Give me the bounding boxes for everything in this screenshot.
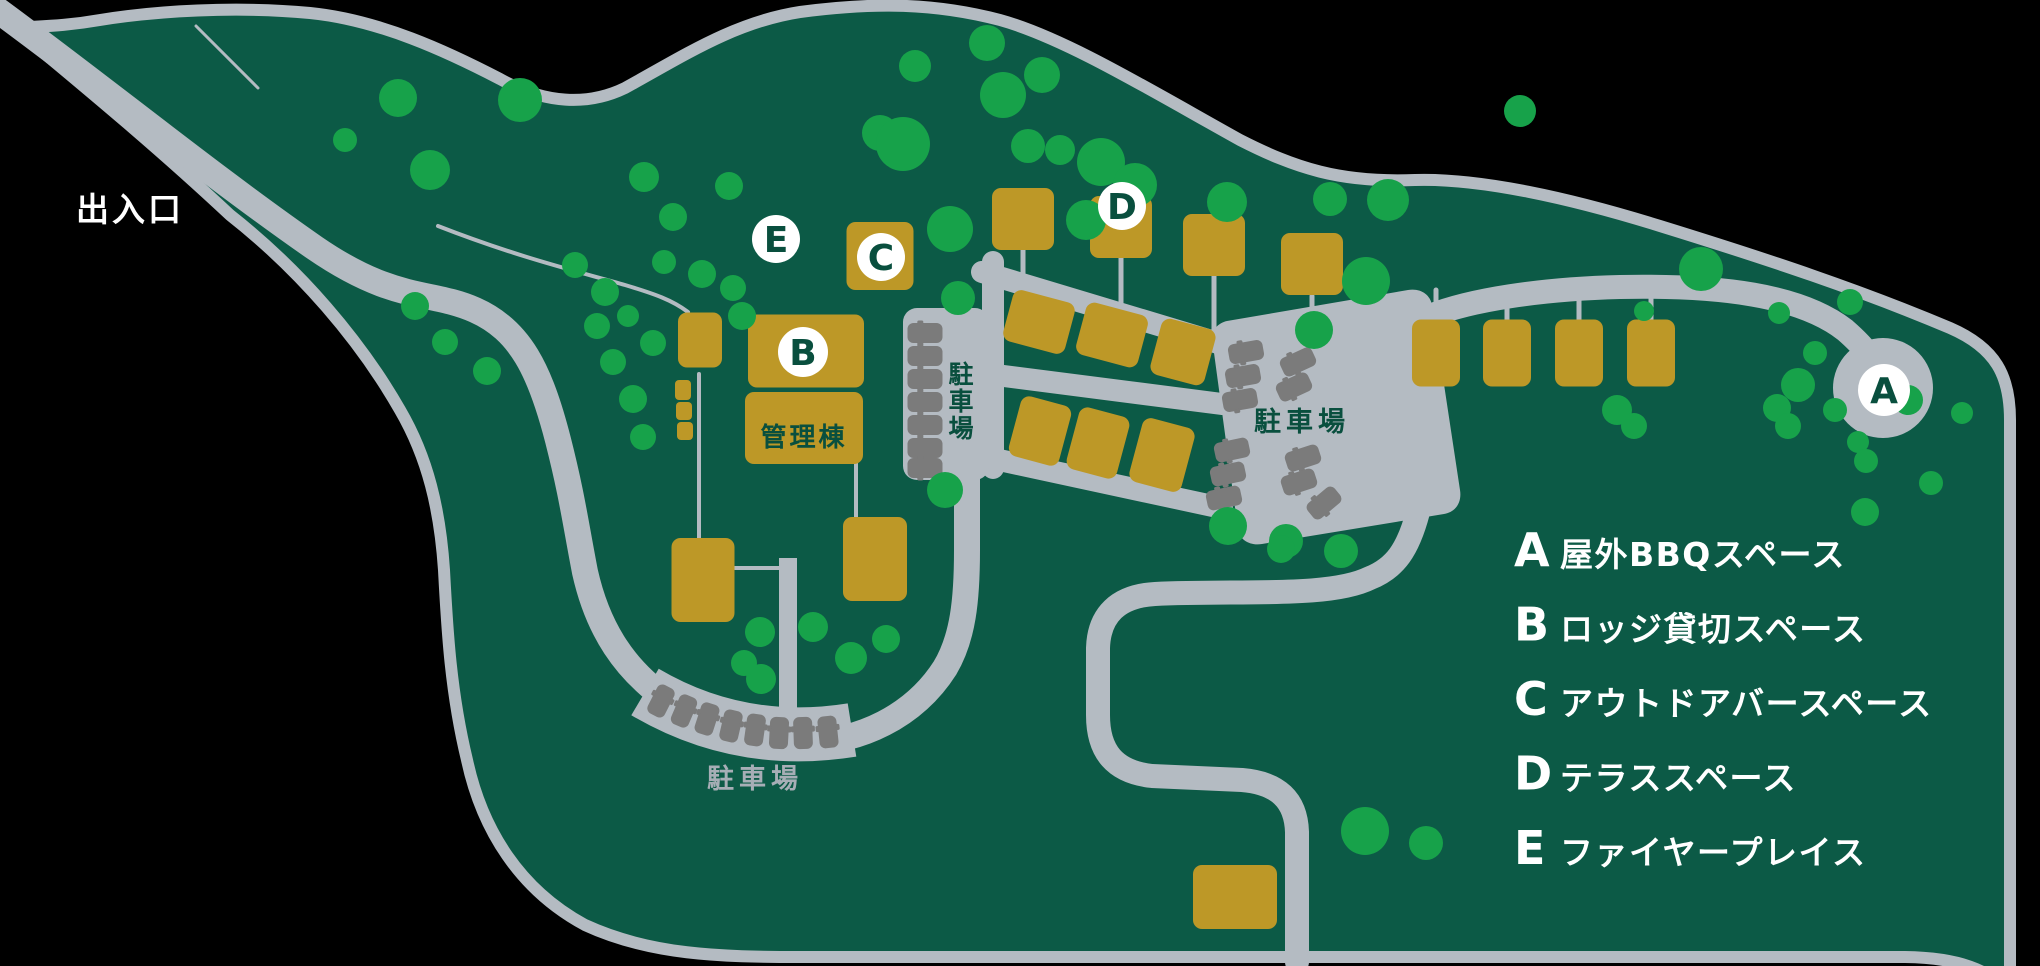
building (678, 313, 722, 368)
marker-c: C (857, 233, 905, 281)
legend-text: ファイヤープレイス (1560, 833, 1867, 872)
marker-e: E (752, 215, 800, 263)
marker-b: B (778, 327, 828, 377)
tree-icon (1367, 179, 1409, 221)
legend-letter: E (1514, 821, 1545, 875)
tree-icon (432, 329, 458, 355)
tree-icon (1919, 471, 1943, 495)
marker-letter: B (789, 333, 816, 374)
building (1412, 320, 1460, 387)
tree-icon (941, 281, 975, 315)
tree-icon (629, 162, 659, 192)
tree-icon (1207, 182, 1247, 222)
marker-d: D (1098, 182, 1146, 230)
tree-icon (688, 260, 716, 288)
tree-icon (600, 349, 626, 375)
entrance-label: 出入口 (76, 190, 184, 229)
tree-icon (1768, 302, 1790, 324)
tree-icon (562, 252, 588, 278)
legend-text: テラススペース (1560, 759, 1797, 798)
legend-letter: C (1514, 672, 1548, 726)
tree-icon (1295, 311, 1333, 349)
tree-icon (1837, 289, 1863, 315)
legend-text: アウトドアバースペース (1560, 684, 1933, 723)
building (1281, 233, 1343, 295)
tree-icon (1823, 398, 1847, 422)
tree-icon (1324, 534, 1358, 568)
legend-letter: B (1514, 598, 1549, 652)
tree-icon (1775, 413, 1801, 439)
legend-letter: D (1514, 747, 1552, 801)
tree-icon (835, 642, 867, 674)
parking-label-right: 駐車場 (1254, 407, 1350, 438)
building (677, 422, 693, 440)
car-icon (908, 413, 943, 438)
tree-icon (969, 25, 1005, 61)
parking-label-bottom: 駐車場 (707, 764, 803, 795)
tree-icon (333, 128, 357, 152)
tree-icon (1342, 257, 1390, 305)
tree-icon (1504, 95, 1536, 127)
building (843, 517, 907, 601)
tree-icon (728, 302, 756, 330)
tree-icon (401, 292, 429, 320)
tree-icon (473, 357, 501, 385)
tree-icon (798, 612, 828, 642)
marker-letter: D (1107, 187, 1137, 228)
tree-icon (591, 278, 619, 306)
car-icon (908, 367, 943, 392)
tree-icon (715, 172, 743, 200)
tree-icon (927, 472, 963, 508)
car-icon (790, 717, 815, 750)
tree-icon (617, 305, 639, 327)
admin-building-label: 管理棟 (760, 423, 847, 453)
car-icon (908, 390, 943, 415)
campsite-map-image: 出入口管理棟駐車場駐車場駐車場 ABCDE A屋外BBQスペースBロッジ貸切スペ… (0, 0, 2040, 966)
tree-icon (1341, 807, 1389, 855)
tree-icon (1313, 182, 1347, 216)
building (1555, 320, 1603, 387)
tree-icon (584, 313, 610, 339)
tree-icon (1209, 507, 1247, 545)
tree-icon (1621, 413, 1647, 439)
tree-icon (1854, 449, 1878, 473)
parking-label-left: 駐車場 (948, 360, 973, 443)
car-icon (908, 321, 943, 346)
tree-icon (630, 424, 656, 450)
tree-icon (1024, 57, 1060, 93)
tree-icon (872, 625, 900, 653)
building (992, 188, 1054, 250)
tree-icon (619, 385, 647, 413)
tree-icon (1634, 301, 1654, 321)
tree-icon (980, 72, 1026, 118)
building (1193, 865, 1277, 929)
car-icon (908, 436, 943, 461)
car-icon (908, 344, 943, 369)
building (1483, 320, 1531, 387)
tree-icon (1011, 129, 1045, 163)
building (1183, 214, 1245, 276)
building (672, 538, 735, 622)
tree-icon (1851, 498, 1879, 526)
tree-icon (731, 650, 757, 676)
tree-icon (1951, 402, 1973, 424)
tree-icon (640, 330, 666, 356)
tree-icon (1803, 341, 1827, 365)
building (676, 402, 692, 420)
marker-letter: A (1870, 371, 1898, 412)
building (675, 380, 691, 400)
tree-icon (652, 250, 676, 274)
legend-text: 屋外BBQスペース (1560, 535, 1846, 574)
tree-icon (410, 150, 450, 190)
tree-icon (720, 275, 746, 301)
marker-letter: C (868, 238, 894, 279)
tree-icon (745, 617, 775, 647)
tree-icon (498, 78, 542, 122)
campsite-map: 出入口管理棟駐車場駐車場駐車場 ABCDE A屋外BBQスペースBロッジ貸切スペ… (0, 0, 2040, 966)
tree-icon (1679, 247, 1723, 291)
tree-icon (927, 206, 973, 252)
legend-letter: A (1514, 523, 1550, 577)
tree-icon (379, 79, 417, 117)
building (1627, 320, 1675, 387)
tree-icon (1781, 368, 1815, 402)
tree-icon (1045, 135, 1075, 165)
marker-letter: E (764, 220, 789, 261)
legend-text: ロッジ貸切スペース (1560, 610, 1867, 649)
tree-icon (899, 50, 931, 82)
tree-icon (659, 203, 687, 231)
marker-a: A (1858, 364, 1910, 416)
tree-icon (1267, 535, 1295, 563)
tree-icon (1409, 826, 1443, 860)
tree-icon (876, 117, 930, 171)
